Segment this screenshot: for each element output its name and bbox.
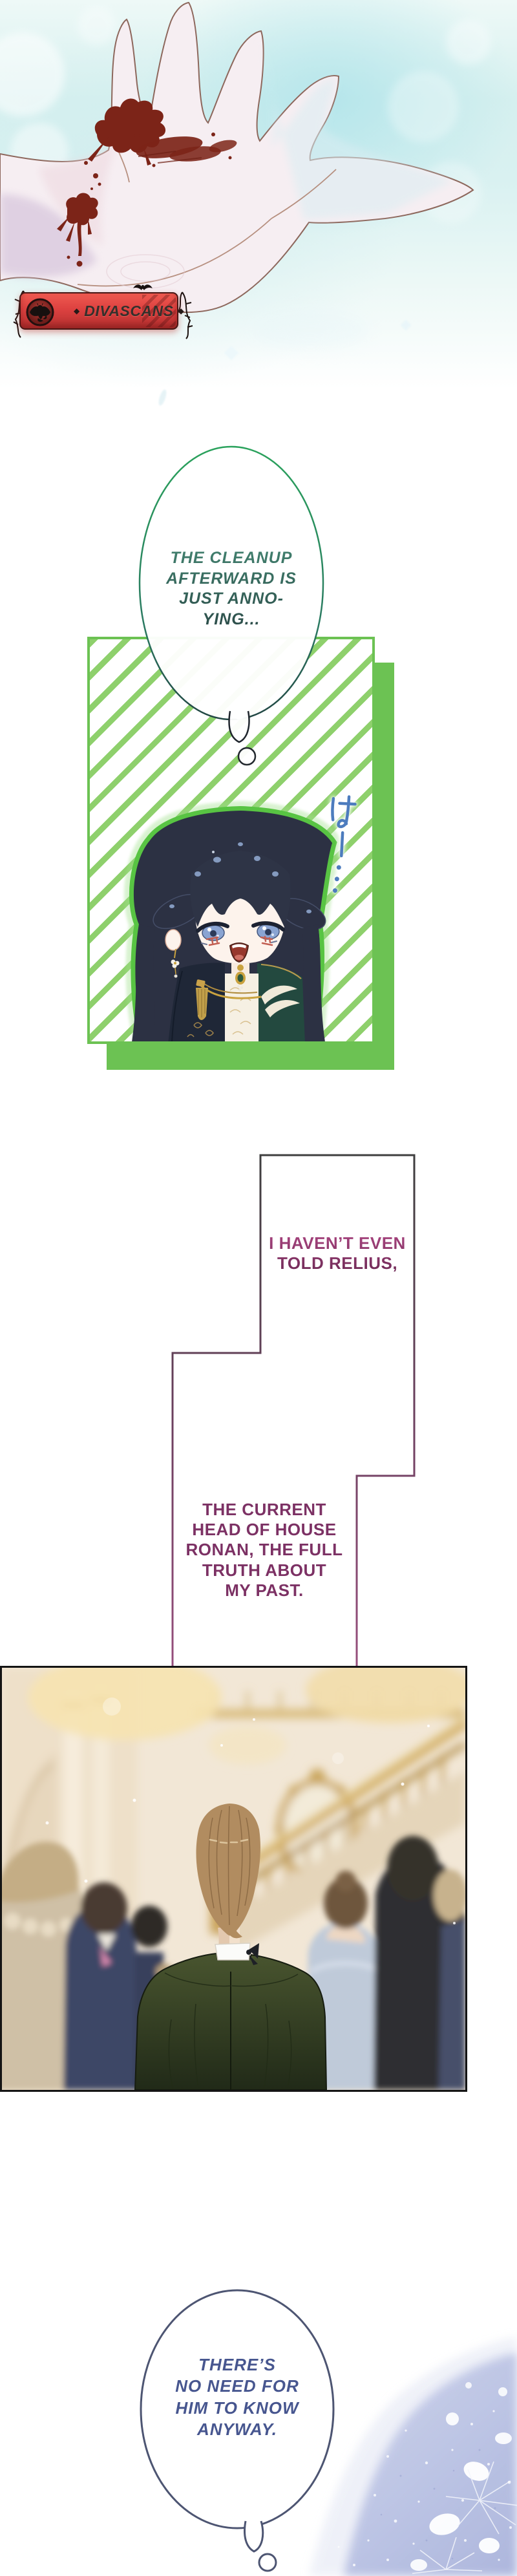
webtoon-page: ◆ DIVASCANS ◆ <box>0 0 517 2576</box>
bat-icon <box>133 284 153 290</box>
man-collar <box>215 1943 250 1960</box>
bubble-1-text: THE CLEANUP AFTERWARD IS JUST ANNO- YING… <box>153 548 310 630</box>
bubble-2-text: THERE’S NO NEED FOR HIM TO KNOW ANYWAY. <box>160 2354 315 2440</box>
watermark-name: DIVASCANS <box>84 303 173 320</box>
tail-seam-cover <box>233 707 246 719</box>
chibi-ear <box>165 930 181 950</box>
tail-seam-cover <box>247 2517 260 2529</box>
sigh-sfx <box>323 790 361 903</box>
caption-1-text: I HAVEN’T EVEN TOLD RELIUS, <box>260 1233 415 1273</box>
scanlation-watermark: ◆ DIVASCANS ◆ <box>17 288 186 334</box>
diamond-ornament: ◆ <box>178 306 184 315</box>
diamond-ornament: ◆ <box>74 306 79 315</box>
caption-panels-outline <box>165 1147 423 1710</box>
bubble-tail-dot <box>238 748 255 765</box>
ballroom-panel <box>0 1666 467 2092</box>
bubble-tail-dot <box>259 2554 276 2571</box>
watermark-banner: ◆ DIVASCANS ◆ <box>19 292 178 330</box>
ballroom-scene <box>2 1668 465 2090</box>
devil-emblem-icon <box>26 298 54 326</box>
caption-2-text: THE CURRENT HEAD OF HOUSE RONAN, THE FUL… <box>173 1500 355 1601</box>
